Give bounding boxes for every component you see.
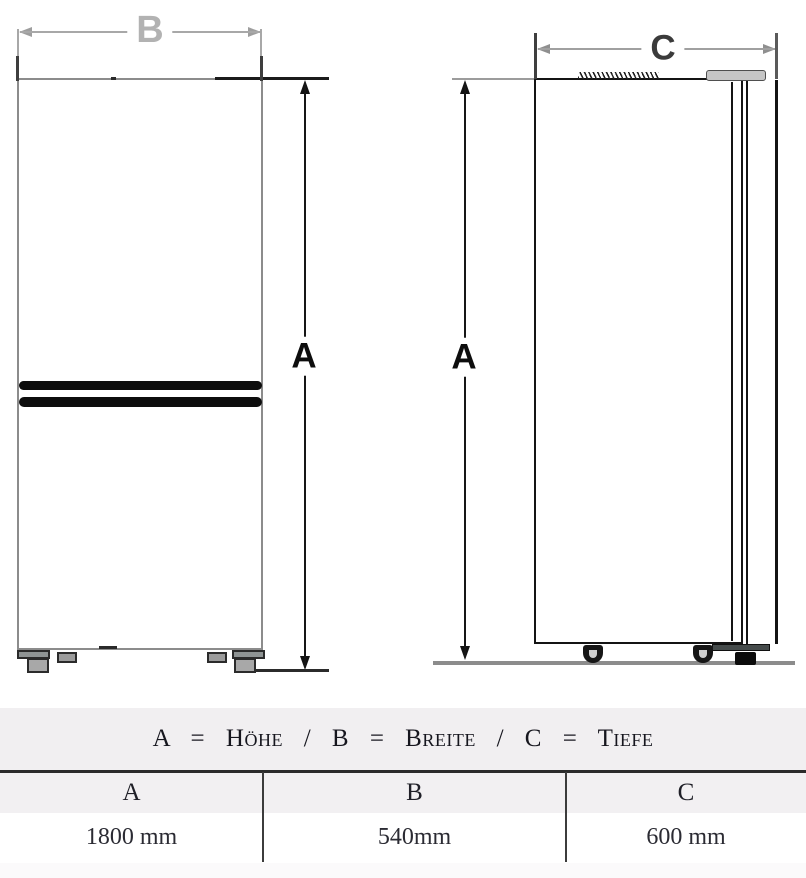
vent-grille [578,72,659,79]
table-value-cell-a: 1800 mm [0,813,263,863]
caster-fork [699,650,707,658]
dimension-drawing: B A C [0,0,806,878]
front-top-extension-line [215,77,329,80]
table-column-divider-2 [565,772,567,862]
legend-caption: A = Höhe / B = Breite / C = Tiefe [0,708,806,770]
leveling-foot-right [234,658,256,673]
door-panel-side [746,80,778,644]
leveling-foot-flange-left [17,650,50,659]
dim-a-front-extension-bottom [252,669,329,672]
dimension-table-header: A B C [0,773,806,813]
door-gasket-bar-upper [19,381,262,390]
footer-band [0,863,806,878]
dim-c-extension-right [775,33,778,79]
foot-small-left [57,652,77,663]
dimension-table-values: 1800 mm 540mm 600 mm [0,813,806,863]
side-body-inner-edge [731,82,733,641]
leveling-foot-flange-right [232,650,265,659]
dim-c-extension-left [534,33,537,79]
dim-a-side-label: A [442,338,485,377]
front-top-left-corner-edge [16,56,19,81]
table-value-cell-b: 540mm [263,813,566,863]
table-header-cell-a: A [0,773,263,813]
front-top-right-corner-edge [260,56,263,81]
door-bottom-trim [712,644,770,651]
foot-small-right [207,652,227,663]
hinge-cover [706,70,766,81]
table-value-cell-c: 600 mm [566,813,806,863]
side-view-body [534,78,743,644]
caster-fork [589,650,597,658]
table-header-cell-c: C [566,773,806,813]
table-column-divider-1 [262,772,264,862]
table-header-cell-b: B [263,773,566,813]
door-gasket-bar-lower [19,397,262,407]
dim-c-label: C [641,29,684,68]
door-bottom-foot [735,652,756,665]
front-view-outline [17,78,263,650]
legend-band: A = Höhe / B = Breite / C = Tiefe [0,708,806,770]
dim-a-front-label: A [282,337,325,376]
bottom-edge-mark [99,646,117,649]
leveling-foot-left [27,658,49,673]
top-edge-mark [111,77,116,80]
dim-b-label: B [127,9,172,51]
